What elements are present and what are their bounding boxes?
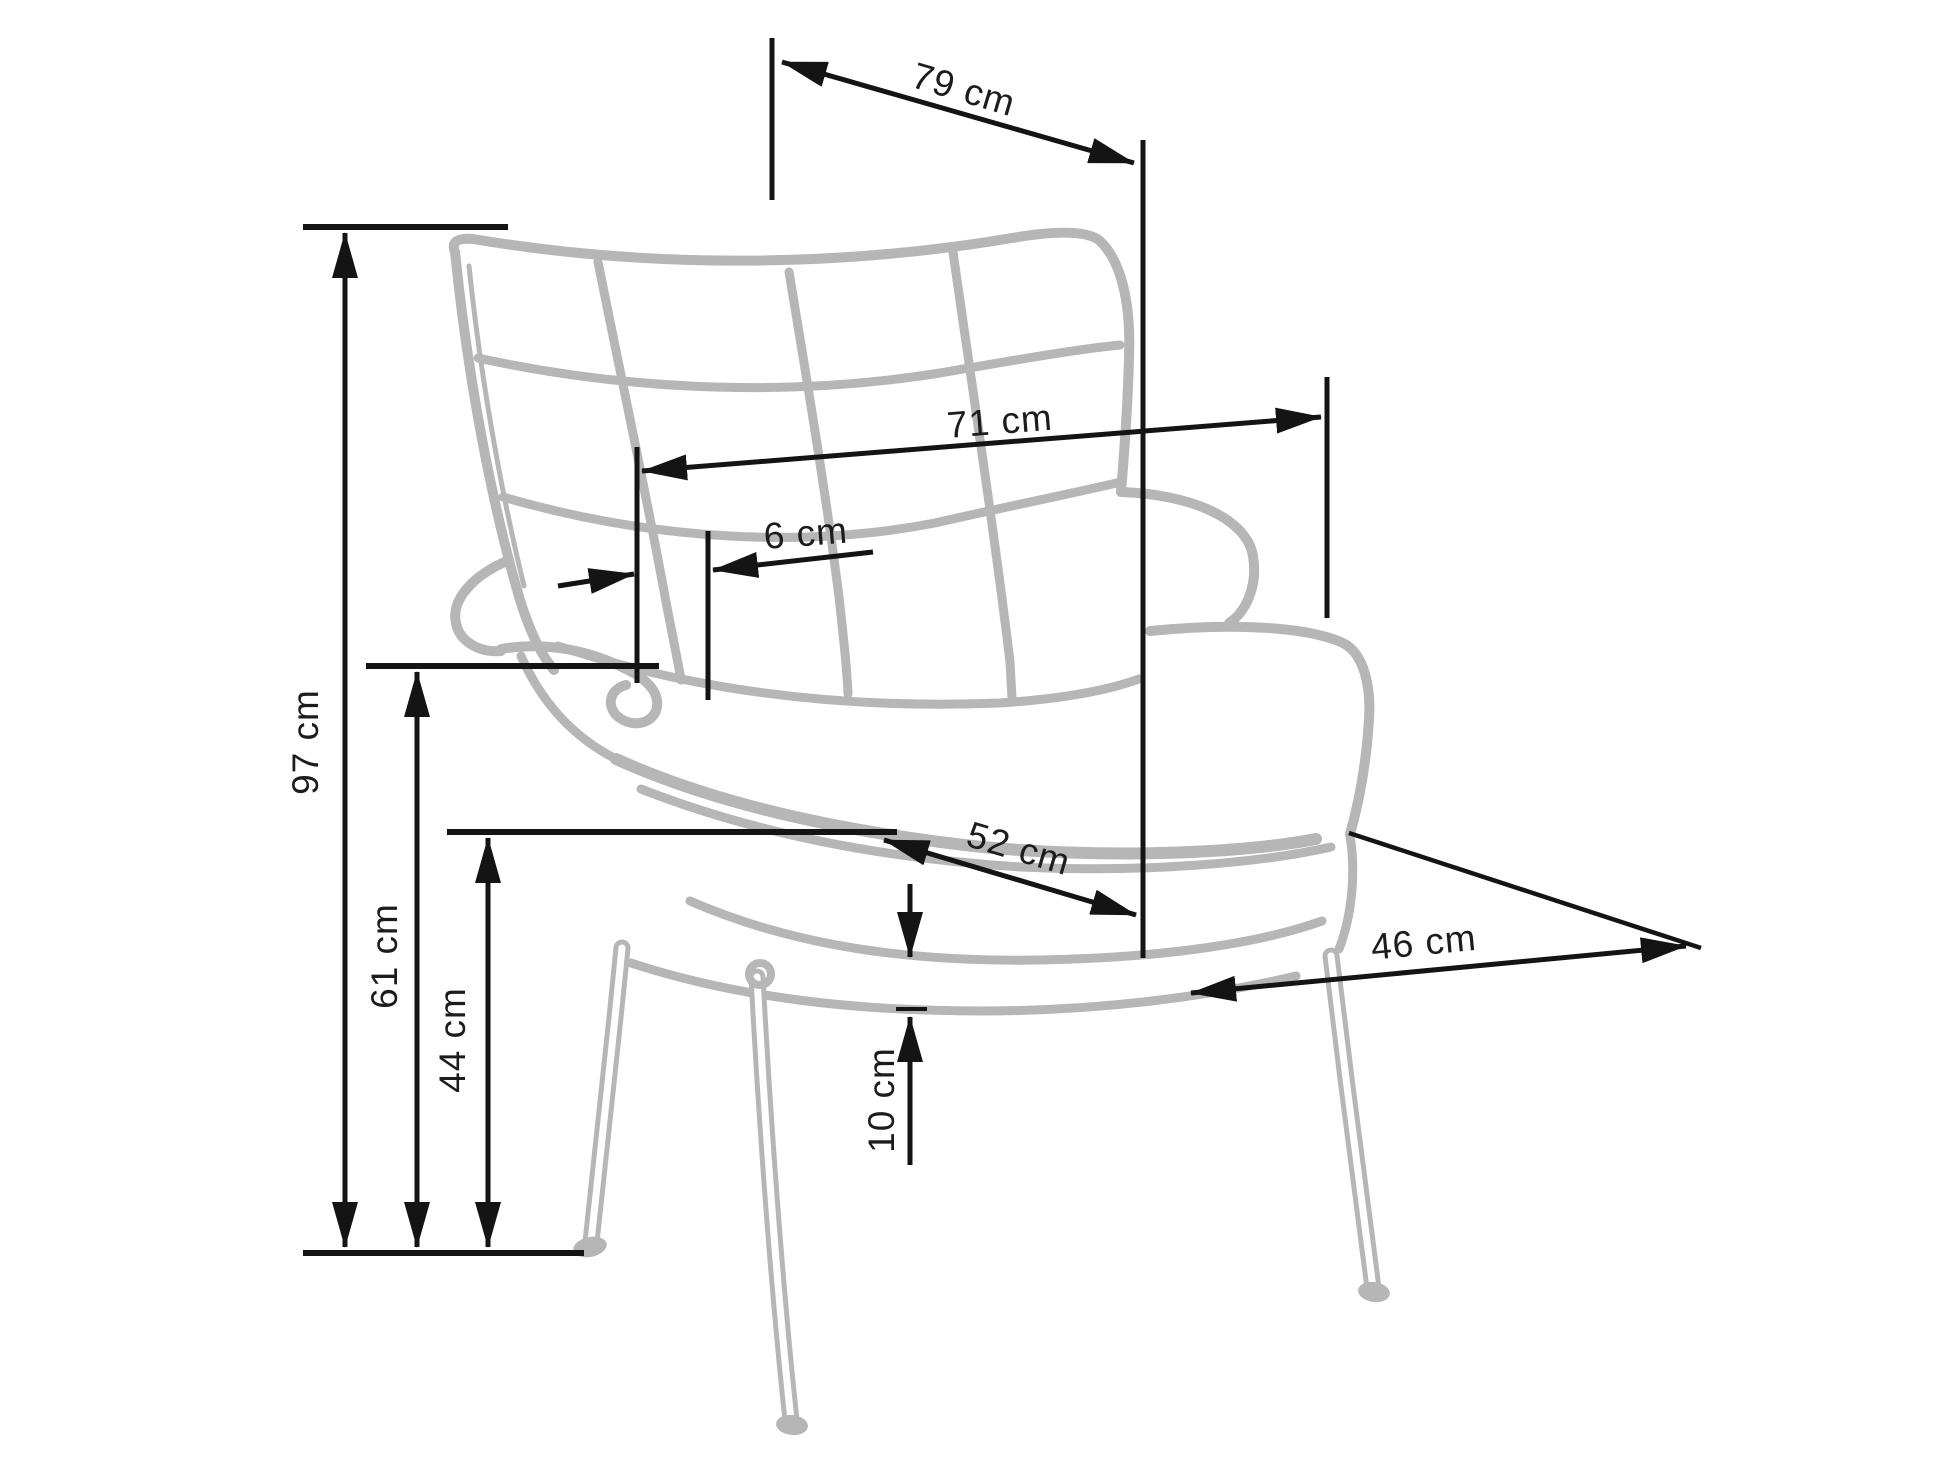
chair-seat-right-side [1339, 836, 1353, 949]
armchair-diagram-canvas: 79 cm 71 cm 6 cm 97 cm 61 cm [0, 0, 1940, 1457]
dim-label-armrest-height: 61 cm [364, 903, 405, 1009]
dim-label-seat-depth: 46 cm [1369, 917, 1478, 968]
chair-back-left-edge [455, 252, 554, 670]
dimension-annotations: 79 cm 71 cm 6 cm 97 cm 61 cm [285, 38, 1701, 1253]
dim-seat-height: 44 cm [432, 832, 897, 1247]
chair-rear-right-leg-highlight [1331, 956, 1373, 1288]
dim-label-back-width: 71 cm [945, 397, 1054, 446]
dim-label-total-height: 97 cm [285, 689, 326, 795]
chair-front-left-foot [571, 1234, 608, 1261]
dim-label-seat-height: 44 cm [432, 987, 473, 1093]
dim-label-seat-width: 52 cm [962, 814, 1075, 883]
chair-underseat-edge [690, 901, 1322, 960]
chair-left-wing [455, 560, 509, 651]
chair-quilt-seam-vertical-2 [789, 272, 848, 694]
chair-quilt-seam-vertical-3 [953, 252, 1012, 698]
chair-left-arm-underside [521, 656, 616, 759]
dim-label-headrest-offset: 6 cm [762, 510, 849, 557]
dim-cushion-thickness: 10 cm [861, 884, 927, 1165]
chair-front-left-leg-highlight [591, 948, 622, 1242]
dim-total-height: 97 cm [285, 227, 584, 1253]
chair-front-right-foot [775, 1413, 809, 1436]
dim-6-arrow-left [558, 574, 634, 586]
chair-front-right-leg-highlight [757, 977, 791, 1420]
dimension-diagram: 79 cm 71 cm 6 cm 97 cm 61 cm [0, 0, 1940, 1457]
dim-back-width: 71 cm [637, 377, 1327, 683]
chair-underseat-rail [631, 963, 1296, 1011]
chair-right-armrest [1150, 627, 1369, 834]
dim-label-cushion-thickness: 10 cm [861, 1047, 902, 1153]
chair-rear-right-foot [1357, 1280, 1391, 1304]
